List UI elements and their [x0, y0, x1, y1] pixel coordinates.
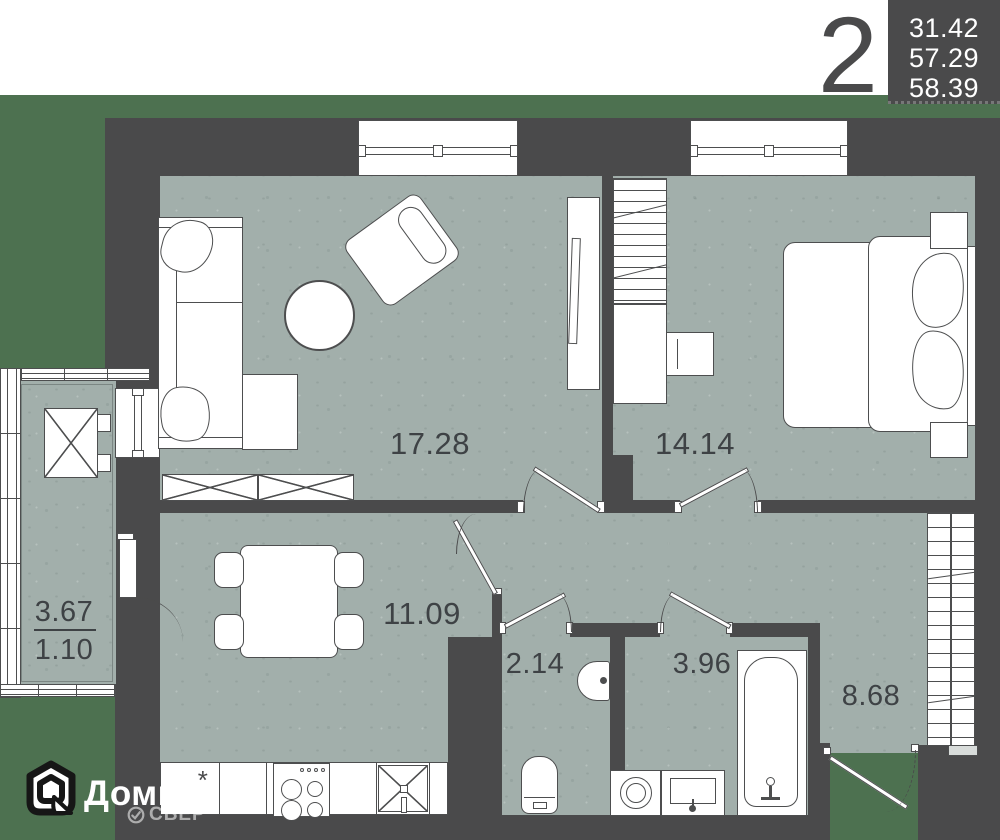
- room-label-balcony-reduced: 1.10: [29, 634, 99, 667]
- toilet-button: [533, 802, 547, 809]
- washing-machine: [610, 770, 661, 816]
- wall: [613, 455, 633, 513]
- wall: [975, 118, 1000, 840]
- sber-logo-text: СБЕР: [149, 804, 206, 826]
- bathroom-sink-counter: [661, 770, 725, 816]
- coffee-table: [284, 280, 355, 351]
- wc-sink-faucet: [600, 677, 607, 684]
- window-mullion: [840, 145, 848, 157]
- areas-info-box: 31.42 57.29 58.39: [888, 0, 1000, 104]
- stove-burner: [307, 802, 323, 818]
- room-label-wc: 2.14: [503, 648, 567, 681]
- window-mullion: [132, 450, 144, 458]
- sideboard-panel: [162, 474, 258, 501]
- nightstand: [930, 212, 968, 249]
- wall: [570, 623, 660, 637]
- balcony-box-bracket: [97, 454, 111, 472]
- wardrobe-rail-line: [613, 204, 667, 218]
- bathtub-faucet: [766, 777, 775, 786]
- sofa-seat-divider: [176, 302, 242, 303]
- balcony-glazing-top: [21, 368, 150, 381]
- window-frame: [134, 389, 142, 457]
- kitchen-sink: [378, 765, 428, 812]
- sideboard-panel: [258, 474, 354, 501]
- glazing-frame-line: [7, 369, 17, 697]
- wc-sink: [577, 661, 610, 701]
- wall: [633, 500, 680, 513]
- corridor-window: [927, 512, 975, 746]
- window-center-mullion: [950, 513, 952, 745]
- balcony-storage-box: [44, 408, 98, 478]
- window-mullion: [132, 388, 144, 396]
- sideboard: [162, 474, 354, 501]
- dining-table: [240, 545, 338, 658]
- bathtub-faucet-bar: [761, 797, 780, 800]
- dining-chair: [334, 614, 364, 650]
- toilet-tank-line: [524, 797, 555, 798]
- wardrobe-lower: [613, 304, 667, 404]
- door-jamb: [823, 747, 831, 755]
- sber-check-icon: [127, 806, 145, 824]
- nightstand: [930, 422, 968, 458]
- window-mullion: [358, 145, 366, 157]
- room-label-corridor: 8.68: [836, 680, 906, 713]
- balcony-area-divider-line: [34, 629, 96, 631]
- window-sill: [948, 745, 978, 756]
- stove-knob: [307, 768, 311, 772]
- wall: [602, 176, 613, 513]
- counter-divider: [376, 763, 377, 814]
- counter-divider: [429, 763, 430, 814]
- stove: [273, 763, 330, 817]
- domclick-house-icon: [24, 760, 78, 820]
- window: [690, 120, 848, 176]
- dining-chair: [214, 614, 244, 650]
- room-label-balcony-area: 3.67: [29, 596, 99, 629]
- wall: [448, 637, 502, 815]
- stove-knob: [314, 768, 318, 772]
- window-mullion: [690, 145, 698, 157]
- stove-knob: [321, 768, 325, 772]
- balcony-glazing-bottom: [0, 684, 116, 697]
- area-value: 31.42: [909, 13, 1000, 43]
- room-label-living: 17.28: [388, 426, 472, 462]
- balcony-window: [115, 388, 160, 458]
- sink-faucet-stem: [692, 799, 694, 806]
- sink-drain: [400, 785, 408, 793]
- window-mullion: [433, 145, 443, 157]
- balcony-box-bracket: [97, 414, 111, 432]
- bedside-table-edge: [667, 339, 678, 369]
- washer-door-inner: [626, 783, 646, 803]
- floor-plan: 3.67 1.10: [0, 0, 1000, 840]
- wardrobe-rail-line: [613, 264, 667, 278]
- bathtub: [737, 650, 807, 816]
- wall: [730, 623, 820, 637]
- door-leaf: [119, 539, 137, 598]
- toilet: [521, 756, 558, 814]
- wall: [105, 118, 160, 368]
- dining-chair: [334, 552, 364, 588]
- stove-burner: [281, 779, 302, 800]
- glazing-frame-line: [22, 373, 149, 379]
- area-value: 57.29: [909, 43, 1000, 73]
- dining-chair: [214, 552, 244, 588]
- sink-faucet: [401, 797, 407, 813]
- room-label-bathroom: 3.96: [668, 648, 736, 681]
- sofa-chaise: [242, 374, 298, 450]
- balcony-glazing-left: [0, 368, 21, 698]
- bedside-table: [666, 332, 714, 376]
- area-value: 58.39: [909, 73, 1000, 103]
- wall: [115, 815, 830, 840]
- glazing-frame-line: [1, 689, 115, 695]
- room-label-bedroom: 14.14: [653, 426, 737, 462]
- room-label-hall: 11.09: [380, 596, 464, 632]
- wall: [160, 500, 523, 513]
- wall: [808, 623, 820, 815]
- stove-knob: [300, 768, 304, 772]
- stove-burner: [281, 800, 302, 821]
- window: [358, 120, 518, 176]
- wardrobe: [613, 178, 667, 304]
- sber-logo: СБЕР: [127, 804, 206, 826]
- stove-burner: [307, 781, 323, 797]
- rooms-count: 2: [782, 4, 878, 108]
- window-mullion: [764, 145, 774, 157]
- sink-faucet: [689, 805, 696, 812]
- window-mullion: [510, 145, 518, 157]
- counter-divider: [266, 763, 267, 814]
